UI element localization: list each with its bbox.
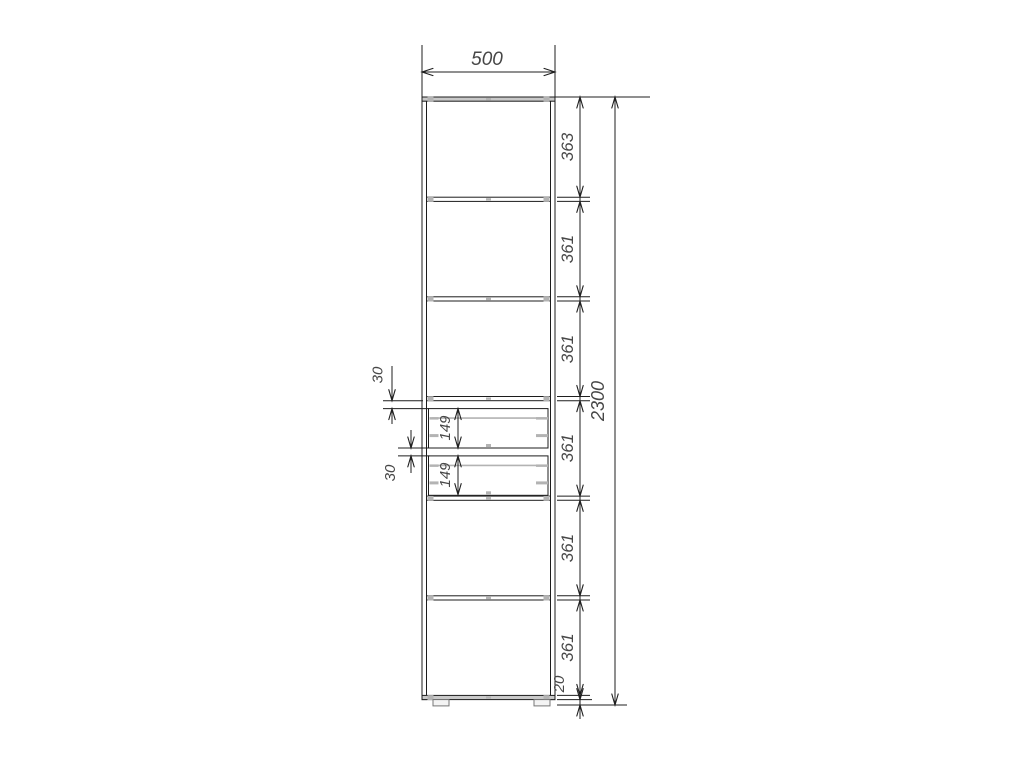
section-label-3: 361 [558,335,577,363]
cabinet-carcass [422,97,555,706]
cabinet-elevation-drawing: 500 363 361 361 361 361 361 20 2300 [0,0,1024,768]
section-label-2: 361 [558,235,577,263]
drawer-gap-between-label: 30 [382,464,399,481]
section-label-1: 363 [558,132,577,161]
width-label: 500 [471,49,503,70]
foot-right [534,700,550,706]
technical-drawing-canvas: 500 363 361 361 361 361 361 20 2300 [0,0,1024,768]
drawer-gap-top-label: 30 [369,366,386,383]
overall-height-label: 2300 [588,381,608,422]
section-label-5: 361 [558,534,577,562]
drawer-front-2-label: 149 [437,462,454,488]
foot-left [433,700,449,706]
section-label-6: 361 [558,633,577,661]
plinth-label: 20 [551,675,568,693]
width-dimension: 500 [422,45,555,97]
side-panel-right [551,97,556,700]
drawer-dimensions: 30 149 30 149 [369,366,461,495]
section-label-4: 361 [558,434,577,462]
overall-height-dimension: 2300 [588,97,618,705]
drawer-front-1-label: 149 [437,415,454,441]
side-panel-left [422,97,427,700]
